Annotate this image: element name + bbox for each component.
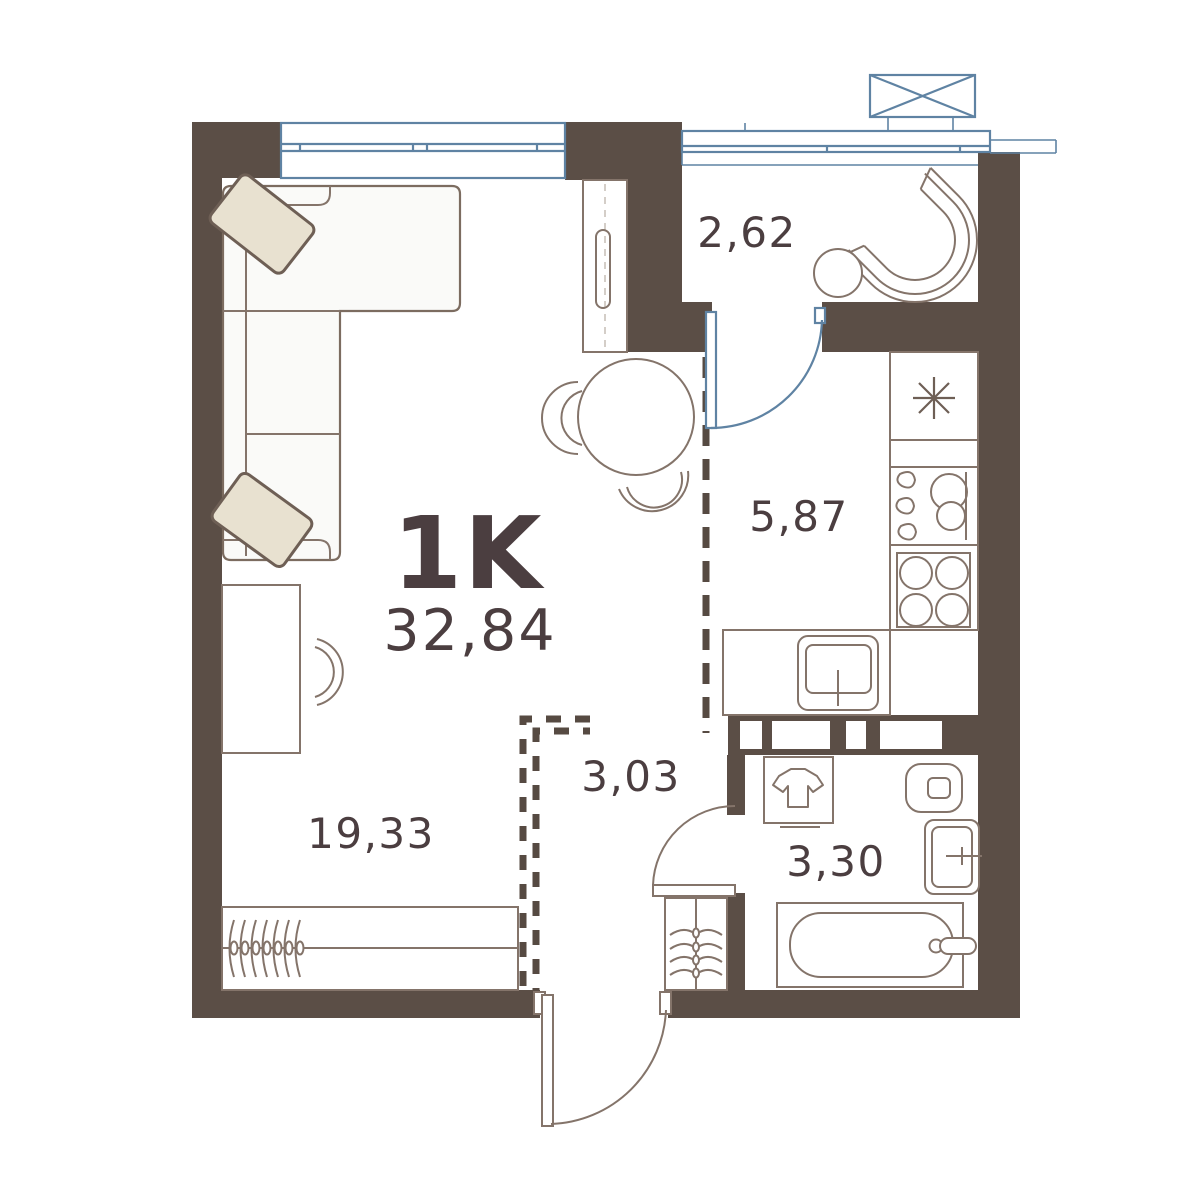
room-area-living: 19,33 xyxy=(307,809,435,858)
dining-chair-left xyxy=(542,382,582,454)
tall-cabinet xyxy=(583,180,627,352)
floor-plan: 1K 32,84 2,62 5,87 3,03 3,30 19,33 xyxy=(0,0,1200,1200)
room-area-corridor: 3,03 xyxy=(581,752,681,801)
oven xyxy=(798,636,878,710)
bathtub xyxy=(777,903,976,987)
room-area-hallway: 2,62 xyxy=(697,208,797,257)
washing-machine xyxy=(764,757,833,827)
toilet xyxy=(906,764,962,812)
wardrobe-corridor xyxy=(665,898,727,990)
dining-chair-bottom xyxy=(619,471,688,511)
unit-type-label: 1K xyxy=(392,495,545,612)
unit-total-area: 32,84 xyxy=(383,598,556,664)
bathroom-door xyxy=(653,806,735,896)
window-living xyxy=(281,123,565,178)
room-area-bathroom: 3,30 xyxy=(786,837,886,886)
room-area-kitchen: 5,87 xyxy=(749,492,849,541)
balcony-door xyxy=(706,308,825,428)
zone-boundary-corridor xyxy=(523,719,590,990)
bathroom-sink xyxy=(925,820,982,894)
balcony-cross-marker xyxy=(870,75,975,131)
vent-duct-wall xyxy=(728,715,978,755)
dining-table xyxy=(578,359,694,475)
desk-chair xyxy=(315,639,343,705)
stove xyxy=(897,553,970,627)
entrance-door xyxy=(534,992,671,1126)
ottoman xyxy=(814,249,862,297)
desk xyxy=(222,585,300,753)
fridge-icon xyxy=(913,377,955,419)
floor-plan-page: 1K 32,84 2,62 5,87 3,03 3,30 19,33 xyxy=(0,0,1200,1200)
wardrobe-living xyxy=(222,907,518,990)
